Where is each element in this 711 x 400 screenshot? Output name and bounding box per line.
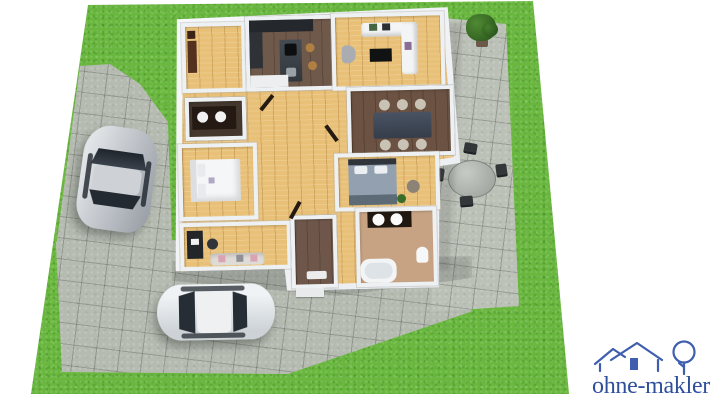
bathtub: [360, 258, 397, 283]
logo-text: ohne-makler: [572, 374, 710, 398]
house-and-tree-icon: [592, 337, 704, 377]
plant: [397, 194, 406, 203]
room-bedroom: [178, 142, 259, 221]
dining-chair: [398, 139, 409, 150]
room-master-bedroom: [334, 151, 440, 211]
pillow: [354, 166, 367, 174]
logo: ohne-makler: [572, 337, 710, 398]
room-dining: [346, 85, 455, 157]
room-entrance-hall: [290, 215, 338, 289]
office-chair: [207, 238, 218, 249]
dining-table: [373, 111, 432, 138]
room-utility: [185, 97, 247, 141]
white-car: [157, 283, 276, 341]
headboard: [348, 158, 396, 165]
sofa-pillow: [250, 254, 257, 261]
silver-car: [73, 122, 161, 235]
toilet: [416, 247, 428, 263]
tall-cabinet: [249, 32, 263, 68]
dining-chair: [397, 99, 408, 110]
car-roof: [197, 291, 232, 334]
dining-chair: [416, 139, 427, 150]
decor-box: [187, 31, 195, 39]
plant-foliage: [482, 22, 498, 37]
wall-cabinets: [249, 19, 313, 32]
office-desk: [187, 231, 204, 259]
room-entry: [181, 22, 247, 93]
bed: [190, 159, 241, 202]
sofa-cushion: [382, 23, 390, 30]
pillow: [198, 184, 206, 197]
pillow: [197, 164, 205, 177]
sofa-cushion: [369, 24, 377, 31]
armchair: [342, 45, 356, 63]
dining-chair: [380, 139, 391, 150]
house: [167, 5, 474, 304]
room-office: [180, 221, 292, 272]
sofa-cushion: [404, 42, 411, 50]
sink: [390, 213, 402, 225]
floor-plan-scene: ohne-makler: [0, 0, 711, 400]
sideboard: [187, 41, 197, 73]
bar-stool: [308, 61, 317, 70]
pillow: [374, 165, 387, 173]
bar-stool: [305, 43, 314, 52]
dining-chair: [415, 99, 426, 110]
dining-chair: [379, 99, 390, 110]
hob: [284, 44, 296, 56]
bed-throw: [349, 194, 397, 205]
kitchen-counter: [250, 75, 288, 88]
front-step: [296, 288, 324, 297]
doormat: [307, 271, 327, 279]
accent-pillow: [209, 177, 215, 183]
sofa-pillow: [218, 255, 225, 262]
vanity: [367, 211, 411, 228]
master-bed: [348, 158, 397, 205]
monitor: [191, 239, 199, 245]
headboard: [190, 160, 197, 202]
rear-window: [179, 289, 196, 335]
office-sofa: [210, 252, 264, 265]
coffee-table: [370, 48, 392, 61]
patio-chair: [495, 163, 508, 177]
sink: [372, 214, 384, 226]
windshield: [233, 288, 248, 334]
room-living: [331, 11, 446, 91]
pouf: [407, 180, 420, 193]
bathtub-basin: [364, 262, 392, 279]
sofa-pillow: [236, 255, 243, 262]
room-bathroom: [355, 206, 438, 287]
